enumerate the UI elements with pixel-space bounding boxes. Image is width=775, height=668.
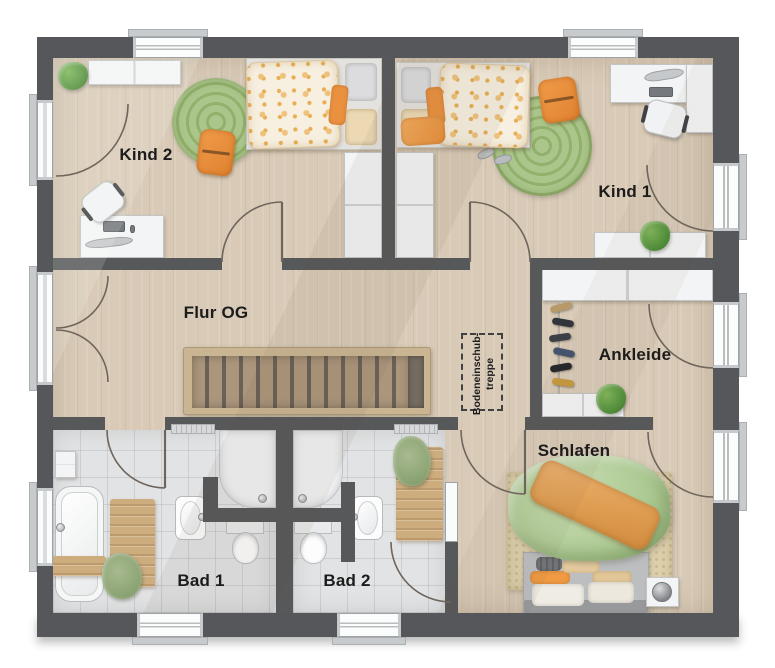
room-label-ankleide: Ankleide [599, 345, 671, 365]
wall [382, 58, 395, 270]
wall [525, 417, 653, 430]
bed-kind2 [246, 58, 382, 150]
pillow [345, 109, 377, 145]
cabinet-bad1 [55, 451, 76, 478]
balcony-door-schlafen-right [713, 430, 739, 503]
pillow [345, 63, 377, 101]
window-sill [29, 482, 37, 572]
pillow-orange [530, 571, 570, 584]
window-bad2-bottom [337, 613, 401, 637]
wall [341, 482, 355, 562]
faucet-icon [56, 523, 65, 532]
window-sill [128, 29, 208, 37]
window-sill [332, 637, 406, 645]
towel-bad2 [393, 436, 431, 486]
desk-kind2 [80, 215, 164, 258]
blanket-orange [400, 115, 446, 146]
bathtub [55, 486, 104, 602]
toilet-bowl-bad2 [300, 532, 327, 564]
pillow [532, 584, 584, 606]
wall [53, 258, 222, 270]
pillow [536, 557, 562, 571]
door-leaf-bad2 [445, 482, 458, 542]
radiator-bad2 [394, 424, 438, 434]
window-bad1-left [37, 488, 53, 566]
bath-caddy [52, 556, 106, 576]
wall [276, 417, 293, 613]
room-label-kind1: Kind 1 [598, 182, 651, 202]
room-label-bad2: Bad 2 [323, 571, 370, 591]
shelf-kind2 [88, 60, 181, 85]
wardrobe-kind2 [344, 152, 382, 258]
attic-stairs-marker: Bodeneinschub- treppe [461, 333, 503, 411]
keyboard-icon [103, 221, 125, 232]
duvet-kind1 [438, 62, 531, 148]
mouse-icon [130, 225, 135, 233]
stairwell-void [408, 356, 424, 408]
wall [53, 417, 105, 430]
window-kind1-top [568, 37, 638, 58]
wall [530, 258, 542, 430]
room-label-schlafen: Schlafen [538, 441, 610, 461]
desk-return-kind1 [686, 64, 713, 133]
shower-valve-icon [258, 494, 267, 503]
floor-pillow-kind1 [537, 75, 581, 124]
floor-pillow-kind2 [195, 128, 236, 177]
duvet-kind2 [246, 59, 341, 149]
wall [445, 542, 458, 613]
towel-bad1 [102, 553, 142, 599]
wardrobe-kind1 [396, 152, 434, 258]
french-door-flur-left [37, 272, 53, 385]
wall [203, 508, 276, 522]
window-kind2-top [133, 37, 203, 58]
window-sill [739, 154, 747, 240]
attic-stairs-annotation: Bodeneinschub- treppe [463, 335, 505, 413]
staircase [183, 347, 431, 415]
monitor-icon [643, 67, 684, 83]
radiator-bad1 [171, 424, 215, 434]
room-label-flur: Flur OG [184, 303, 249, 323]
pillow [588, 582, 634, 603]
table-lamp-icon [652, 582, 672, 602]
window-sill [563, 29, 643, 37]
shower-valve-icon [298, 494, 307, 503]
window-bad1-bottom [137, 613, 203, 637]
floor-plan: Bodeneinschub- treppe [0, 0, 775, 668]
balcony-door-kind2-left [37, 100, 53, 180]
monitor-icon [85, 236, 134, 250]
toilet-bowl-bad1 [232, 532, 259, 564]
window-sill [132, 637, 208, 645]
balcony-door-kind1-right [713, 163, 739, 231]
keyboard-icon [649, 87, 673, 97]
wall [530, 258, 713, 270]
window-sill [739, 293, 747, 377]
balcony-door-ankleide-right [713, 302, 739, 368]
wall [282, 258, 470, 270]
bed-kind1 [396, 62, 530, 148]
window-sill [29, 94, 37, 186]
room-label-kind2: Kind 2 [119, 145, 172, 165]
double-bed-schlafen [523, 552, 649, 614]
room-label-bad1: Bad 1 [177, 571, 224, 591]
window-sill [739, 422, 747, 511]
window-sill [29, 266, 37, 391]
shower-bad1 [219, 430, 276, 508]
shoe-rack [544, 302, 590, 394]
stair-treads [192, 356, 410, 408]
